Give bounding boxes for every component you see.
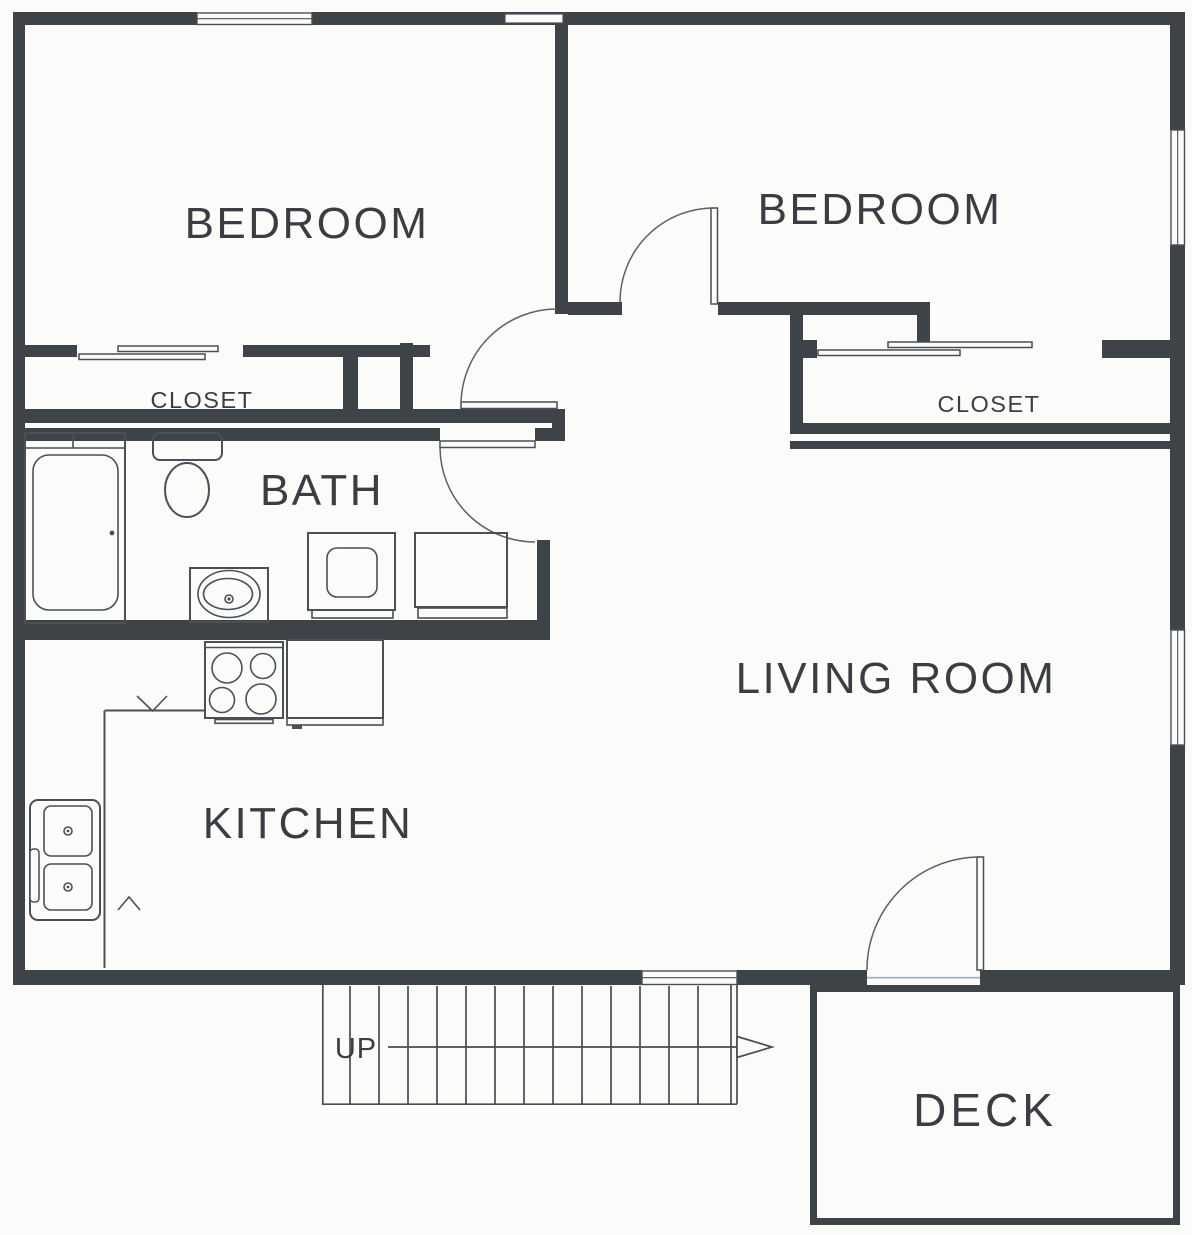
counter-break-mark bbox=[137, 696, 167, 711]
bedroom1-south-wall bbox=[22, 345, 77, 357]
bath-label: BATH bbox=[260, 466, 384, 515]
door-leaf bbox=[461, 402, 557, 409]
exterior-walls bbox=[13, 12, 1185, 985]
closet-sliding-doors bbox=[79, 342, 1032, 360]
bath-north-wall bbox=[535, 428, 565, 441]
bedroom2-door bbox=[620, 208, 718, 304]
exterior-wall bbox=[1170, 245, 1185, 630]
window-symbol bbox=[1171, 630, 1185, 745]
dryer bbox=[415, 533, 507, 618]
closet2-door-jamb bbox=[800, 340, 817, 358]
kitchen-sink bbox=[30, 800, 100, 920]
sliding-door-panel bbox=[118, 346, 218, 352]
kitchen-label: KITCHEN bbox=[203, 799, 414, 848]
deck-door bbox=[867, 857, 984, 978]
door-swing bbox=[867, 857, 980, 970]
counter-break-mark bbox=[118, 897, 140, 910]
window-symbol bbox=[1171, 130, 1185, 245]
floor-plan-drawing: UP BEDROOM BEDROOM CLOSET CLOSET BATH LI… bbox=[0, 0, 1192, 1235]
bath-fixtures bbox=[25, 433, 507, 623]
toilet bbox=[153, 433, 222, 517]
closet1-bottom-wall bbox=[13, 409, 565, 423]
bath-door bbox=[440, 441, 535, 542]
up-arrow bbox=[388, 1037, 772, 1058]
arrow-head bbox=[737, 1037, 772, 1058]
bedroom-divider-wall bbox=[555, 25, 568, 314]
burner bbox=[251, 654, 276, 679]
closet-left-label: CLOSET bbox=[150, 387, 253, 413]
exterior-wall bbox=[1170, 12, 1185, 130]
exterior-wall bbox=[980, 970, 1185, 985]
door-leaf bbox=[711, 208, 718, 304]
sliding-door-panel bbox=[818, 350, 960, 356]
washer bbox=[308, 533, 395, 618]
sliding-door-panel bbox=[79, 354, 205, 360]
bedroom1-door bbox=[461, 309, 557, 409]
living-room-label: LIVING ROOM bbox=[736, 654, 1057, 703]
livingroom-north-wall bbox=[790, 441, 1170, 449]
window-symbol bbox=[197, 13, 312, 25]
burner bbox=[210, 688, 235, 713]
door-swing bbox=[620, 208, 714, 302]
sliding-door-panel bbox=[888, 342, 1032, 348]
closet2-bottom-wall bbox=[790, 423, 1170, 434]
exterior-wall bbox=[1170, 745, 1185, 985]
kitchen-counter bbox=[105, 696, 206, 968]
closet-right-label: CLOSET bbox=[937, 391, 1040, 417]
bathtub bbox=[25, 433, 125, 623]
exterior-wall bbox=[13, 970, 642, 985]
door-swing bbox=[461, 309, 557, 405]
burner bbox=[212, 653, 242, 683]
bedroom2-south-wall bbox=[568, 302, 622, 315]
doors bbox=[440, 208, 984, 978]
wall-cap bbox=[505, 14, 563, 23]
closet2-door-jamb bbox=[1102, 340, 1170, 358]
exterior-wall bbox=[737, 970, 867, 985]
closet1-right-wall bbox=[343, 345, 358, 413]
burner bbox=[246, 684, 276, 714]
stairs: UP bbox=[322, 985, 772, 1105]
interior-walls bbox=[13, 25, 1170, 640]
window-symbol bbox=[642, 971, 737, 985]
wall-jog bbox=[917, 315, 930, 343]
door-leaf bbox=[440, 441, 535, 448]
exterior-wall bbox=[13, 12, 25, 985]
exterior-wall bbox=[312, 12, 1185, 25]
stove bbox=[205, 642, 283, 723]
stair-treads bbox=[350, 986, 698, 1104]
faucet-ledge bbox=[30, 849, 39, 902]
bedroom-right-label: BEDROOM bbox=[758, 185, 1003, 234]
exterior-wall bbox=[13, 12, 197, 25]
bedroom2-south-wall bbox=[718, 302, 930, 315]
door-leaf bbox=[977, 857, 984, 970]
tub-drain bbox=[110, 531, 115, 536]
kitchen-counter-appliance bbox=[287, 640, 383, 729]
bathroom-sink bbox=[190, 568, 268, 622]
deck-label: DECK bbox=[913, 1084, 1057, 1136]
stairs-up-label: UP bbox=[335, 1033, 377, 1065]
floor-plan: UP BEDROOM BEDROOM CLOSET CLOSET BATH LI… bbox=[0, 0, 1192, 1235]
door-swing bbox=[440, 447, 535, 542]
closet2-west-wall bbox=[790, 313, 803, 433]
bedroom-left-label: BEDROOM bbox=[185, 199, 430, 248]
bath-north-wall bbox=[13, 428, 440, 441]
